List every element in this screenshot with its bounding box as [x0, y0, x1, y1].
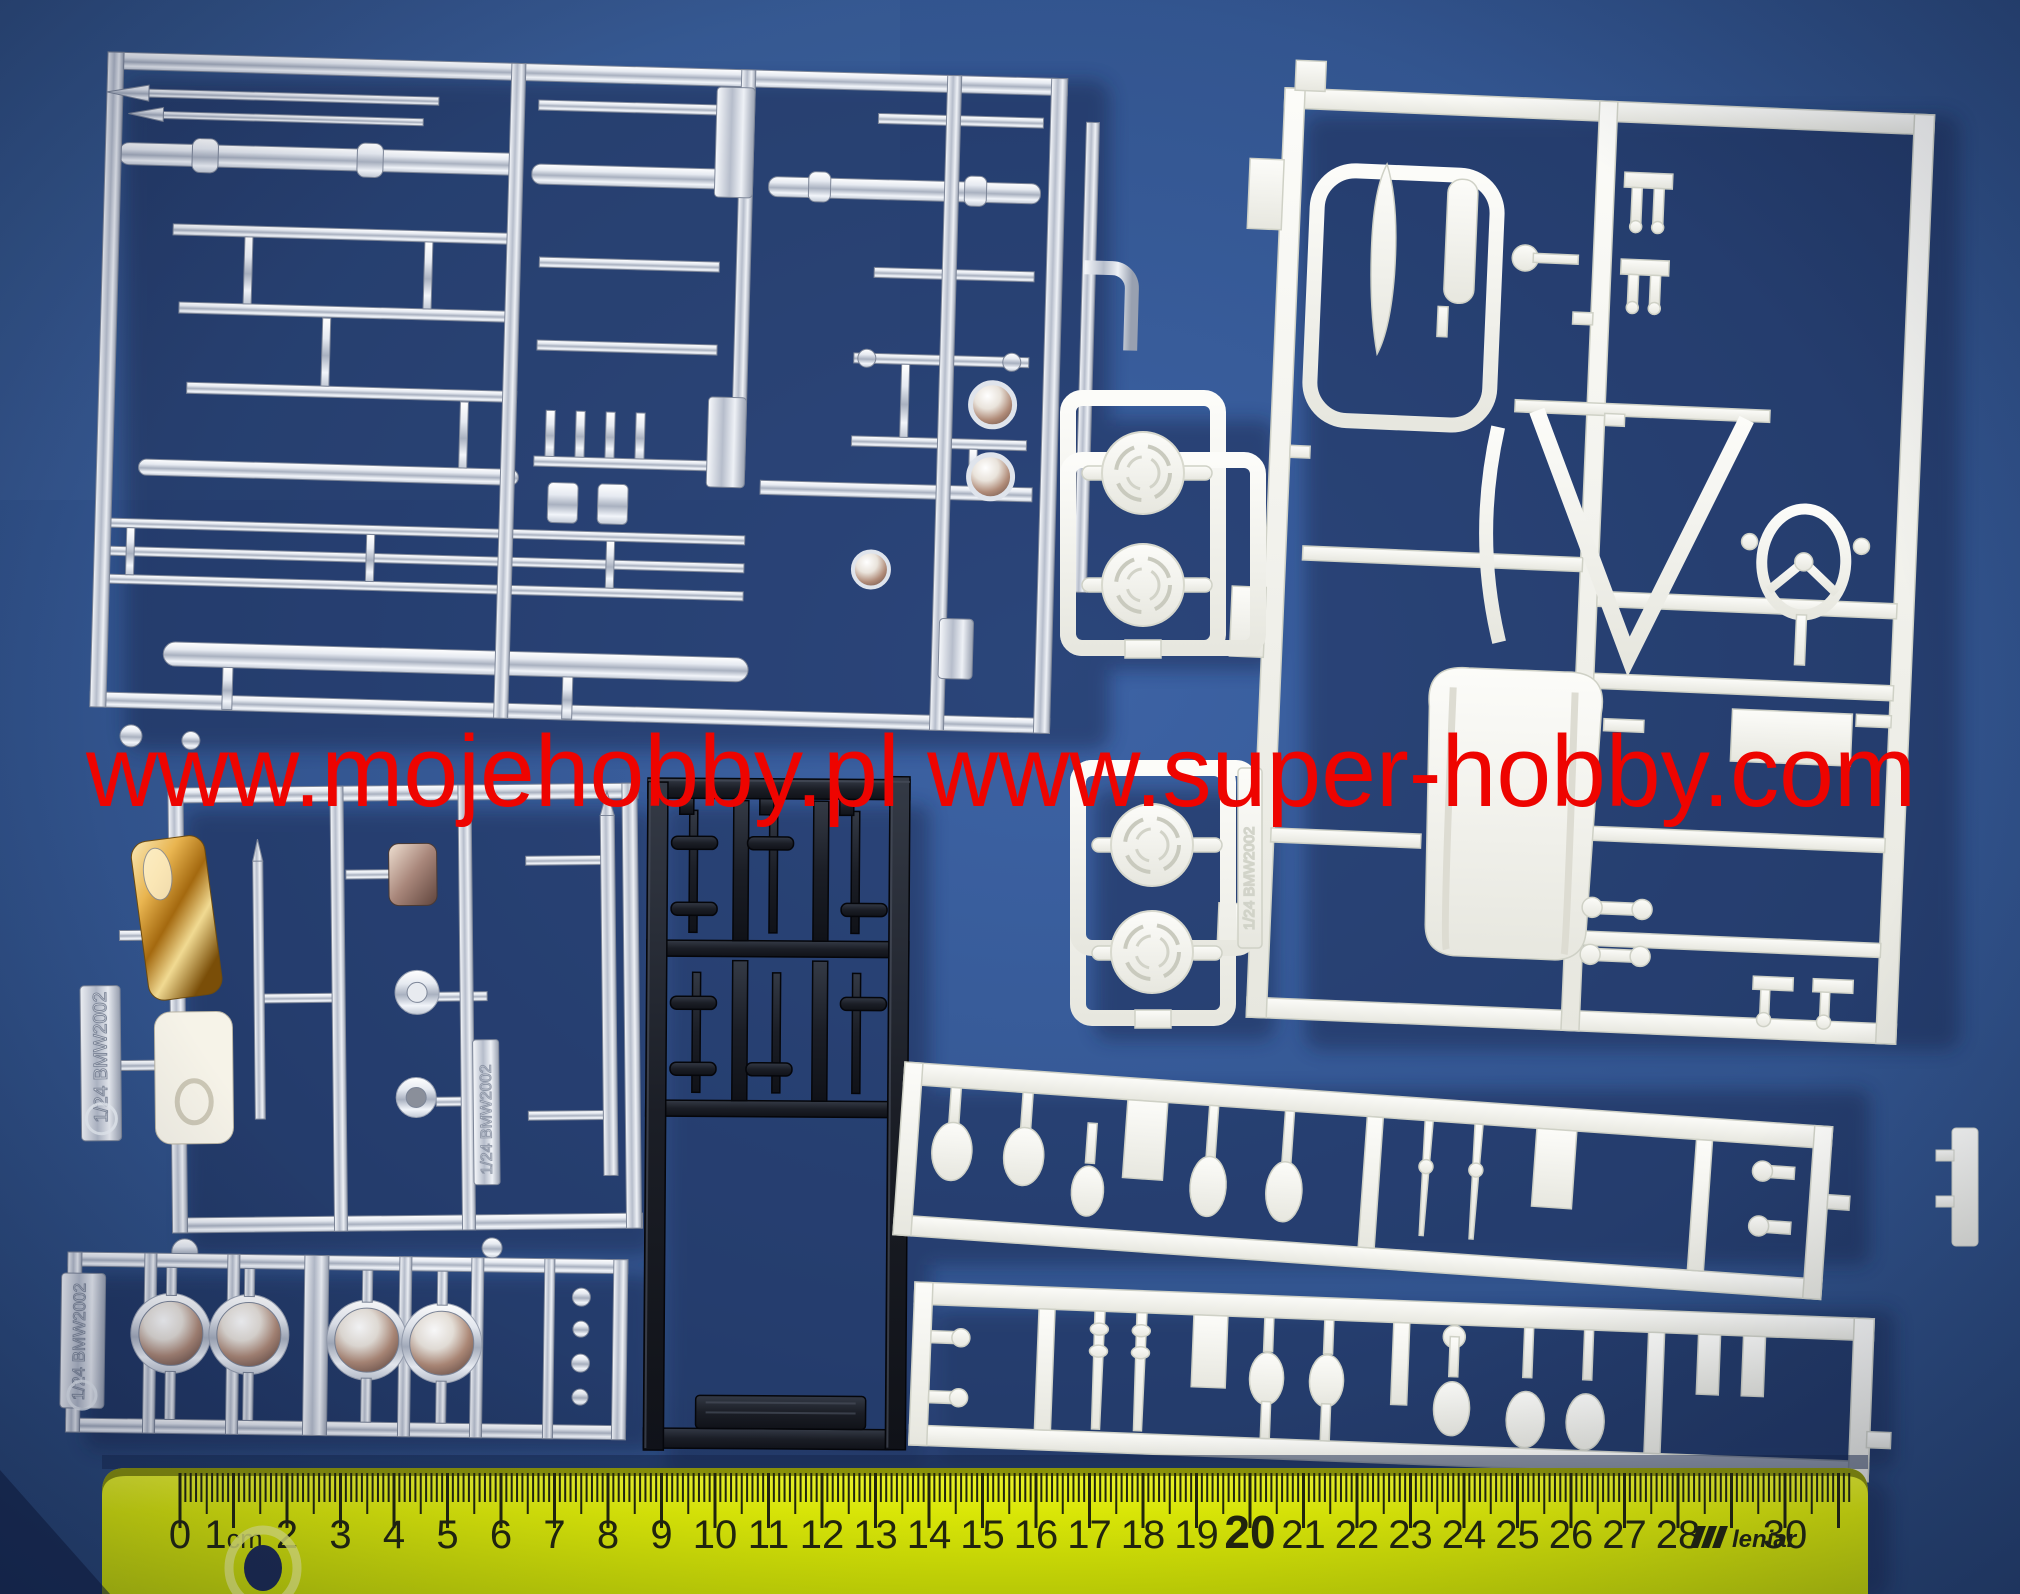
watermark-text: www.mojehobby.pl www.super-hobby.com [85, 716, 1916, 828]
kit-photo: 1/24 BMW2002 1/24 BMW2002 [0, 0, 2020, 1594]
kit-photo-svg: 1/24 BMW2002 1/24 BMW2002 [0, 0, 2020, 1594]
